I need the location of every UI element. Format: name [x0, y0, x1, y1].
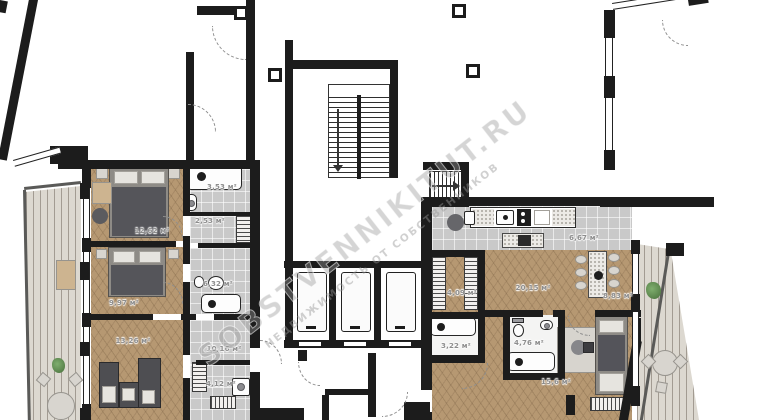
window	[632, 254, 639, 294]
wall	[298, 350, 307, 361]
room-label-living: 13,26 м²	[116, 337, 151, 345]
wall	[181, 314, 196, 320]
wall-pier	[80, 262, 89, 280]
elevator-door-mark	[395, 326, 405, 329]
wall	[183, 160, 190, 214]
window-diagonal	[612, 0, 698, 10]
blanket	[598, 335, 625, 371]
nightstand	[96, 249, 107, 259]
pillow	[141, 171, 165, 184]
tub-drain	[515, 358, 523, 366]
faucet	[503, 215, 508, 220]
pillow	[139, 251, 161, 263]
dining-chair	[575, 281, 587, 290]
window	[632, 312, 639, 386]
island-cooktop	[518, 235, 531, 246]
stair-arrow-head	[333, 165, 343, 172]
wall-pier	[80, 183, 89, 199]
room-label-wardrobe-hall: 4,09 м²	[447, 289, 477, 297]
dining-chair	[575, 268, 587, 277]
kitchen-sink	[496, 210, 514, 225]
pillow	[599, 320, 624, 333]
wall	[91, 241, 176, 247]
plant	[52, 358, 65, 373]
wall	[246, 0, 255, 162]
wall-pier	[604, 76, 615, 98]
stair-divider-wall	[357, 95, 361, 179]
door-swing	[260, 340, 282, 364]
column	[268, 68, 282, 82]
wall	[425, 355, 485, 363]
room-label-bedroom3: 15,6 м²	[541, 378, 571, 386]
wall	[288, 60, 398, 69]
wall	[325, 389, 371, 395]
room-label-loggia: 8,83 м²	[603, 292, 633, 300]
wall-pier	[604, 10, 615, 38]
nightstand	[96, 168, 108, 179]
plant	[646, 282, 661, 299]
nightstand	[168, 249, 179, 259]
column	[452, 4, 466, 18]
wall-pier	[82, 313, 91, 327]
kitchen-counter	[470, 207, 576, 228]
bathtub	[201, 294, 241, 313]
counter-top	[472, 209, 494, 226]
elevator-door	[299, 341, 321, 347]
room-label-hallway2: 10,16 м²	[207, 345, 242, 353]
stair-arrow-line	[337, 109, 339, 165]
counter-module	[534, 210, 550, 225]
dresser	[92, 182, 112, 204]
room-label-bathroom4: 4,76 м²	[514, 339, 544, 347]
bathtub	[507, 352, 555, 371]
column	[234, 6, 248, 20]
pillow	[113, 251, 135, 263]
main-staircase	[328, 84, 390, 178]
toilet	[513, 324, 524, 337]
kitchen-island	[502, 233, 544, 248]
sink-basin	[544, 323, 550, 329]
dining-table	[588, 251, 607, 298]
room-label-entry: 4,12 м²	[206, 380, 236, 388]
wall-corner	[666, 243, 684, 256]
dining-chair	[608, 253, 620, 262]
room-label-kitchen: 6,67 м²	[569, 234, 599, 242]
diagonal-wall	[0, 0, 39, 161]
window	[605, 98, 613, 150]
wardrobe	[464, 256, 478, 310]
elevator-car	[386, 272, 416, 332]
wall	[256, 408, 304, 420]
wall-pier	[631, 240, 640, 254]
tub-drain	[437, 323, 445, 331]
tub-drain	[208, 300, 216, 308]
counter-top	[552, 209, 575, 226]
wall	[600, 197, 714, 207]
room-label-bedroom2: 9,97 м²	[109, 299, 139, 307]
door-swing	[662, 20, 688, 46]
wall	[478, 251, 485, 355]
stair-arrow-line	[432, 185, 454, 187]
door-swing	[298, 362, 320, 386]
wall	[284, 261, 429, 268]
wardrobe	[432, 256, 446, 310]
wall	[558, 310, 565, 380]
wall	[322, 395, 329, 420]
wall-pier	[631, 386, 640, 406]
pillow	[114, 171, 138, 184]
elevator-door	[344, 341, 366, 347]
wall	[250, 160, 260, 348]
tub-drain	[197, 172, 206, 181]
stool	[447, 214, 464, 231]
elevator-door	[389, 341, 411, 347]
pouf	[92, 208, 108, 224]
wall	[425, 312, 485, 319]
cooktop	[517, 209, 531, 226]
terrace-table	[47, 392, 75, 420]
room-label-bathroom3: 3,22 м²	[441, 342, 471, 350]
elevator-door-mark	[306, 326, 316, 329]
bathtub	[430, 317, 476, 336]
wall-stub	[688, 0, 709, 6]
wall	[368, 353, 376, 417]
sofa-cushion	[142, 390, 155, 404]
toilet-tank	[512, 318, 524, 323]
bed-throw	[599, 373, 624, 392]
wall	[374, 268, 381, 340]
burner	[521, 219, 525, 223]
wall	[285, 40, 293, 348]
wall-pier	[604, 150, 615, 170]
room-label-hallway1: 2,53 м²	[195, 217, 225, 225]
room-label-bedroom1: 12,62 м²	[135, 227, 170, 235]
room-label-bathroom2: 6,32 м²	[203, 280, 233, 288]
wall	[196, 360, 250, 365]
nightstand	[168, 168, 180, 179]
sink	[540, 320, 553, 330]
kitchen-cabinet	[464, 211, 475, 225]
wall	[214, 314, 250, 320]
wall	[485, 310, 503, 317]
elevator-car	[341, 272, 371, 332]
dining-chair	[608, 279, 620, 288]
wardrobe	[192, 362, 207, 392]
wardrobe	[210, 396, 236, 409]
storage-box	[56, 260, 76, 290]
blanket	[111, 265, 163, 295]
window	[605, 38, 613, 76]
burner	[521, 212, 525, 216]
elevator-door-mark	[350, 326, 360, 329]
wall	[329, 268, 336, 340]
wall-stub	[0, 0, 8, 13]
room-label-living-dining: 20,15 м²	[516, 284, 551, 292]
washer-drum	[237, 383, 245, 391]
wall	[183, 212, 255, 216]
floor-plan: 12,62 м² 3,53 м² 2,53 м² 9,97 м² 6,32 м²…	[0, 0, 760, 420]
stair-arrow-head	[453, 181, 460, 191]
wall	[566, 395, 575, 415]
dining-chair	[575, 255, 587, 264]
wall-pier	[82, 238, 91, 252]
wall	[503, 310, 510, 380]
wall	[183, 236, 190, 264]
wall	[198, 243, 250, 248]
stair-flight-right	[360, 97, 389, 177]
column	[466, 64, 480, 78]
sofa-cushion	[102, 386, 116, 403]
sofa	[99, 360, 161, 408]
dining-chair	[608, 266, 620, 275]
wall	[390, 60, 398, 178]
door-swing	[188, 104, 216, 132]
terrace-chair	[655, 381, 668, 394]
laptop	[583, 342, 594, 353]
wall	[183, 378, 190, 420]
wall-pier	[80, 408, 89, 420]
wall-pier	[80, 342, 89, 356]
table-center	[594, 271, 603, 280]
bed-2	[108, 247, 166, 297]
room-label-bathroom1: 3,53 м²	[207, 183, 237, 191]
wall	[91, 314, 153, 320]
sofa-cushion	[122, 388, 135, 401]
window	[83, 327, 90, 404]
door-swing	[212, 26, 246, 60]
hallway2-floor	[190, 320, 250, 365]
bed-3	[595, 316, 628, 395]
elevator-car	[297, 272, 327, 332]
wall	[421, 412, 432, 420]
